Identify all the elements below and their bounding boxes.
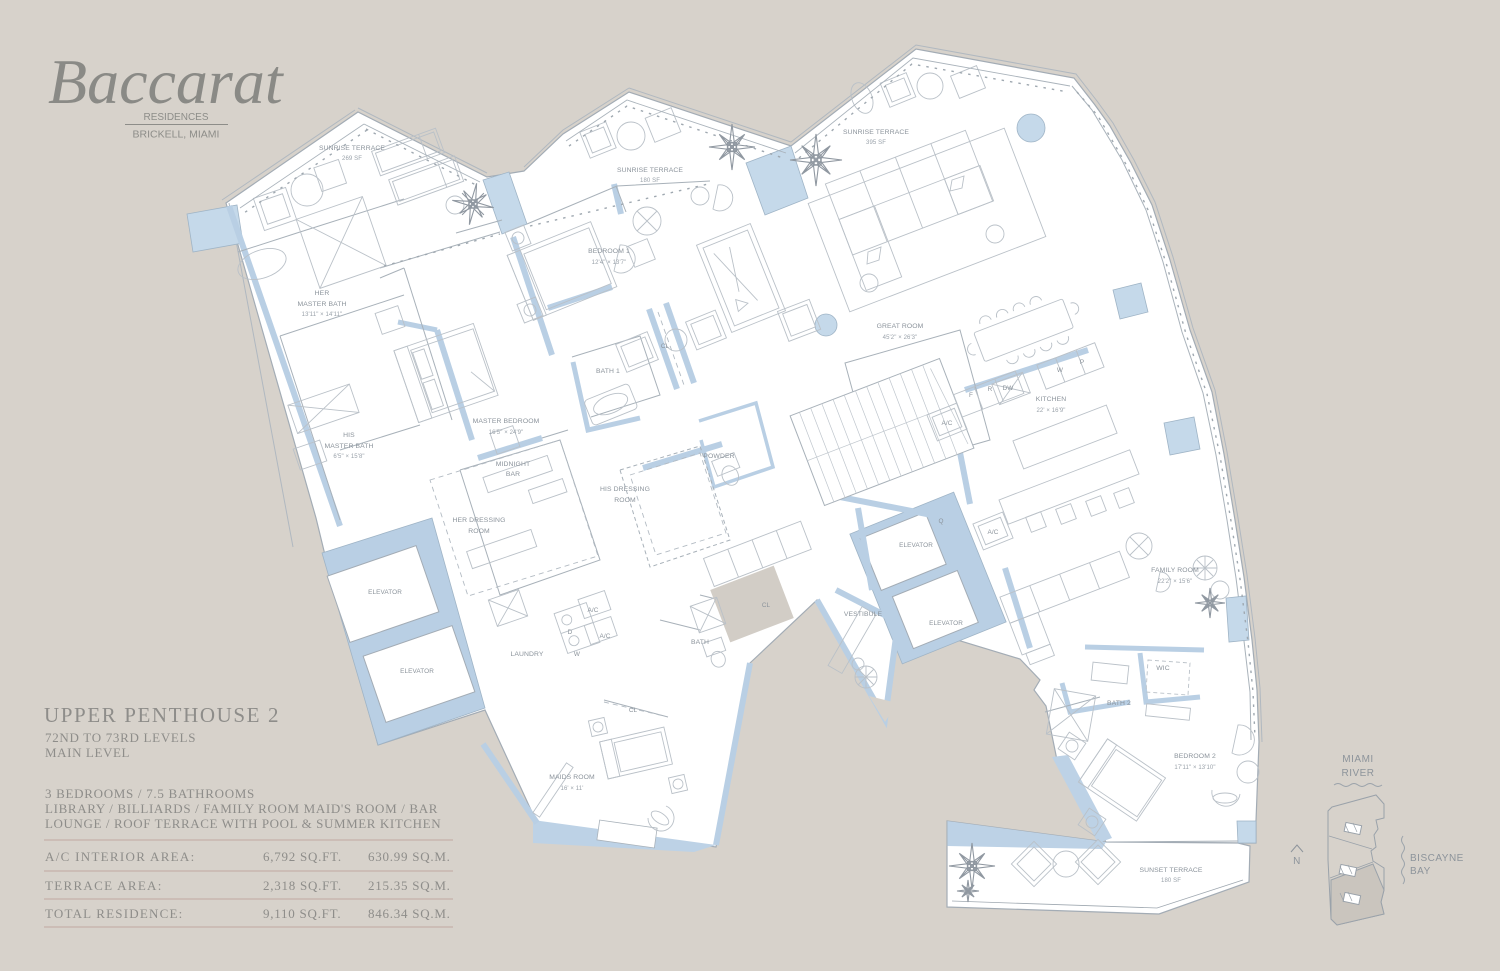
svg-text:BISCAYNE: BISCAYNE — [1410, 853, 1464, 864]
svg-text:180 SF: 180 SF — [640, 178, 660, 184]
svg-text:22' × 16'9": 22' × 16'9" — [1036, 408, 1065, 414]
svg-text:FAMILY ROOM: FAMILY ROOM — [1151, 567, 1199, 574]
svg-text:16' × 11': 16' × 11' — [561, 786, 584, 792]
svg-text:MASTER BATH: MASTER BATH — [298, 301, 347, 308]
svg-text:ELEVATOR: ELEVATOR — [368, 589, 402, 596]
svg-text:CL: CL — [661, 343, 670, 350]
svg-text:3 BEDROOMS / 7.5 BATHROOMS: 3 BEDROOMS / 7.5 BATHROOMS — [45, 786, 255, 801]
svg-text:A/C INTERIOR AREA:: A/C INTERIOR AREA: — [45, 849, 196, 864]
svg-text:12'4" × 13'7": 12'4" × 13'7" — [592, 260, 627, 266]
svg-text:TOTAL RESIDENCE:: TOTAL RESIDENCE: — [45, 906, 183, 921]
svg-text:BATH 2: BATH 2 — [1107, 700, 1131, 707]
svg-text:CL: CL — [762, 602, 771, 609]
svg-text:RIVER: RIVER — [1341, 768, 1374, 779]
svg-text:MIDNIGHT: MIDNIGHT — [496, 461, 530, 468]
svg-text:HIS DRESSING: HIS DRESSING — [600, 486, 650, 493]
svg-text:22'2" × 15'6": 22'2" × 15'6" — [1158, 579, 1193, 585]
svg-text:ELEVATOR: ELEVATOR — [400, 668, 434, 675]
svg-text:BATH 1: BATH 1 — [596, 368, 620, 375]
svg-text:P: P — [1080, 359, 1084, 366]
svg-text:D: D — [568, 629, 573, 636]
svg-text:SUNRISE TERRACE: SUNRISE TERRACE — [843, 129, 909, 136]
svg-text:2,318 SQ.FT.: 2,318 SQ.FT. — [263, 878, 342, 893]
svg-text:MIAMI: MIAMI — [1342, 754, 1373, 765]
svg-text:W: W — [574, 651, 581, 658]
svg-text:215.35 SQ.M.: 215.35 SQ.M. — [368, 878, 451, 893]
svg-text:180 SF: 180 SF — [1161, 878, 1181, 884]
svg-text:DW: DW — [1003, 385, 1015, 392]
svg-text:ROOM: ROOM — [468, 528, 490, 535]
svg-text:RESIDENCES: RESIDENCES — [143, 112, 208, 123]
svg-text:45'2" × 26'3": 45'2" × 26'3" — [883, 335, 918, 341]
svg-text:SUNSET TERRACE: SUNSET TERRACE — [1139, 867, 1202, 874]
svg-text:MASTER BEDROOM: MASTER BEDROOM — [473, 418, 540, 425]
svg-text:VESTIBULE: VESTIBULE — [844, 611, 883, 618]
svg-text:A/C: A/C — [988, 529, 999, 536]
svg-text:13'11" × 14'11": 13'11" × 14'11" — [302, 312, 343, 318]
svg-text:17'11" × 13'10": 17'11" × 13'10" — [1174, 765, 1215, 771]
svg-text:F: F — [969, 392, 973, 399]
svg-text:TERRACE AREA:: TERRACE AREA: — [45, 878, 163, 893]
svg-text:ELEVATOR: ELEVATOR — [899, 542, 933, 549]
svg-text:BAR: BAR — [506, 471, 520, 478]
svg-text:BEDROOM 2: BEDROOM 2 — [1174, 753, 1216, 760]
svg-text:16'5" × 24'9": 16'5" × 24'9" — [489, 430, 524, 436]
svg-text:6'5" × 15'8": 6'5" × 15'8" — [333, 454, 364, 460]
svg-text:MAIDS ROOM: MAIDS ROOM — [549, 774, 595, 781]
svg-text:GREAT ROOM: GREAT ROOM — [877, 323, 924, 330]
svg-text:SUNRISE TERRACE: SUNRISE TERRACE — [617, 167, 683, 174]
svg-text:LOUNGE / ROOF TERRACE WITH POO: LOUNGE / ROOF TERRACE WITH POOL & SUMMER… — [45, 816, 441, 831]
svg-text:LIBRARY / BILLIARDS / FAMILY R: LIBRARY / BILLIARDS / FAMILY ROOM MAID'S… — [45, 801, 438, 816]
svg-text:HER: HER — [315, 290, 330, 297]
svg-text:LAUNDRY: LAUNDRY — [510, 651, 543, 658]
svg-text:BRICKELL, MIAMI: BRICKELL, MIAMI — [133, 129, 220, 141]
svg-text:9,110 SQ.FT.: 9,110 SQ.FT. — [263, 906, 341, 921]
svg-text:UPPER PENTHOUSE 2: UPPER PENTHOUSE 2 — [44, 703, 280, 727]
svg-text:POWDER: POWDER — [703, 453, 734, 460]
svg-text:SUNRISE TERRACE: SUNRISE TERRACE — [319, 145, 385, 152]
svg-text:R: R — [988, 386, 993, 393]
svg-text:A/C: A/C — [942, 420, 953, 427]
svg-text:HER DRESSING: HER DRESSING — [453, 517, 506, 524]
svg-text:MAIN LEVEL: MAIN LEVEL — [45, 745, 130, 760]
svg-text:269 SF: 269 SF — [342, 156, 362, 162]
svg-text:WIC: WIC — [1156, 665, 1170, 672]
svg-text:630.99 SQ.M.: 630.99 SQ.M. — [368, 849, 451, 864]
svg-text:ELEVATOR: ELEVATOR — [929, 620, 963, 627]
svg-text:BATH: BATH — [691, 639, 709, 646]
svg-text:W: W — [1057, 367, 1064, 374]
svg-text:CL: CL — [629, 707, 638, 714]
svg-text:395 SF: 395 SF — [866, 140, 886, 146]
svg-text:MASTER BATH: MASTER BATH — [325, 443, 374, 450]
svg-text:A/C: A/C — [588, 607, 599, 614]
svg-text:N: N — [1293, 856, 1301, 867]
svg-text:KITCHEN: KITCHEN — [1036, 396, 1067, 403]
svg-text:BAY: BAY — [1410, 866, 1431, 877]
svg-text:846.34 SQ.M.: 846.34 SQ.M. — [368, 906, 451, 921]
svg-text:Baccarat: Baccarat — [48, 46, 285, 117]
svg-text:Q: Q — [938, 518, 943, 525]
svg-text:ROOM: ROOM — [614, 497, 636, 504]
svg-text:6,792 SQ.FT.: 6,792 SQ.FT. — [263, 849, 342, 864]
svg-text:BEDROOM 1: BEDROOM 1 — [588, 248, 630, 255]
svg-text:HIS: HIS — [343, 432, 355, 439]
svg-text:A/C: A/C — [600, 633, 611, 640]
svg-text:72ND TO 73RD LEVELS: 72ND TO 73RD LEVELS — [45, 730, 196, 745]
